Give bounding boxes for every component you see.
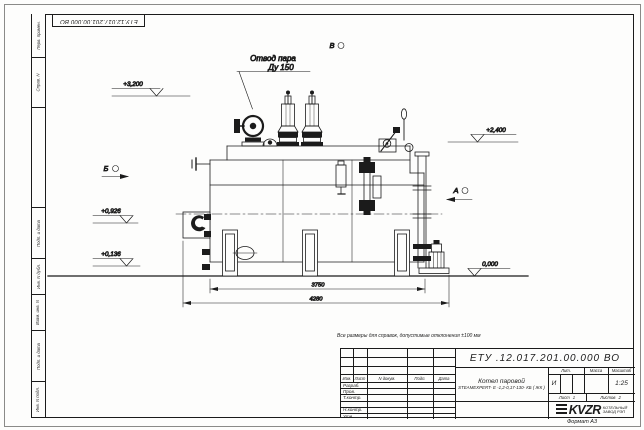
- row-utv: Утв.: [341, 413, 367, 419]
- scale-header: Масштаб: [608, 367, 635, 374]
- col-list: Лист: [353, 374, 367, 382]
- kvzr-logo-icon: [556, 404, 567, 416]
- sheets-label: Листов: [600, 395, 615, 400]
- sheet-label: Лист: [559, 395, 570, 400]
- title-block: ЕТУ .12.017.201.00.000 ВО Изм. Лист N до…: [340, 348, 634, 418]
- col-izm: Изм.: [341, 374, 353, 382]
- sheet-value: 1: [573, 395, 575, 400]
- margin-cell-inv-podl: Инв. N подл.: [31, 382, 45, 418]
- scale-value: 1:25: [608, 374, 635, 393]
- product-name-line2: STEAMEXPERT- Е -1,2-0,17-130- КБ ( ЖК ): [458, 385, 545, 390]
- product-name-line1: Котел паровой: [478, 378, 525, 385]
- col-data: Дата: [433, 374, 455, 382]
- margin-cell-empty: [31, 108, 45, 208]
- kvzr-logo-text: KVZR: [569, 403, 601, 417]
- margin-cell-vzam-inv: Взам. инв. N: [31, 295, 45, 331]
- col-podp: Подп.: [407, 374, 433, 382]
- title-designation: ЕТУ .12.017.201.00.000 ВО: [455, 349, 635, 367]
- doc-number-rotated: ЕТУ.12.017.201.00.000 ВО: [60, 18, 138, 24]
- sheets-value: 2: [618, 395, 620, 400]
- mass-header: Масса: [584, 367, 608, 374]
- margin-cell-sprav-n: Справ. N: [31, 58, 45, 108]
- doc-number-rotated-box: ЕТУ.12.017.201.00.000 ВО: [52, 14, 145, 27]
- company-cell: KVZR КОТЕЛЬНЫЙ ЗАВОД РЭП: [548, 401, 635, 419]
- margin-cell-podp-data-2: Подп. и дата: [31, 331, 45, 382]
- margin-cell-podp-data-1: Подп. и дата: [31, 208, 45, 259]
- reference-note: Все размеры для справок, допустимые откл…: [337, 333, 537, 339]
- lit-value: И: [548, 374, 560, 393]
- margin-cell-perv-primen: Перв. примен.: [31, 14, 45, 58]
- lit-header: Лит.: [548, 367, 584, 374]
- sheets-cell: Листов 2: [586, 393, 635, 401]
- col-docnum: N докум.: [367, 374, 407, 382]
- sheet-cell: Лист 1: [548, 393, 586, 401]
- margin-cell-inv-dubl: Инв. N дубл.: [31, 259, 45, 295]
- drawing-sheet: 3750 4280 +3,200 +0,926: [0, 0, 644, 430]
- format-label: Формат А3: [552, 419, 612, 425]
- company-name: КОТЕЛЬНЫЙ ЗАВОД РЭП: [603, 406, 628, 415]
- product-name-cell: Котел паровой STEAMEXPERT- Е -1,2-0,17-1…: [455, 367, 548, 401]
